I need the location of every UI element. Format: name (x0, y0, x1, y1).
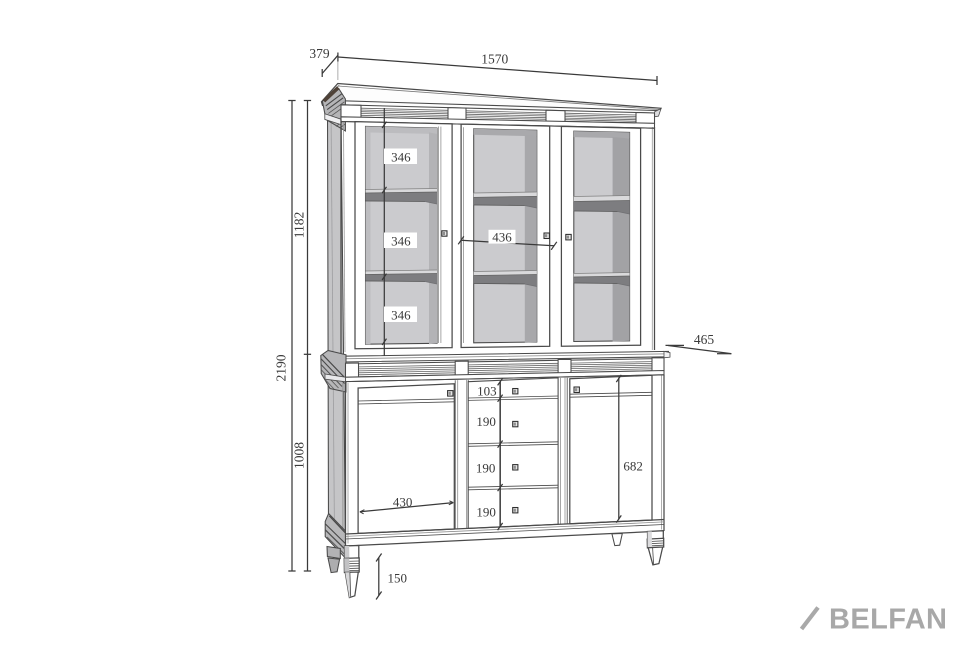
svg-text:346: 346 (391, 233, 411, 248)
svg-text:190: 190 (476, 414, 496, 429)
svg-text:BELFAN: BELFAN (829, 604, 947, 636)
svg-text:190: 190 (476, 460, 496, 475)
svg-text:346: 346 (391, 307, 411, 322)
svg-text:150: 150 (388, 570, 408, 585)
svg-text:1570: 1570 (481, 52, 508, 67)
svg-text:103: 103 (477, 384, 497, 399)
svg-text:465: 465 (694, 332, 715, 347)
svg-text:2190: 2190 (274, 354, 289, 381)
svg-text:190: 190 (476, 504, 496, 519)
svg-text:430: 430 (393, 495, 413, 510)
svg-text:682: 682 (623, 459, 643, 474)
svg-text:379: 379 (309, 46, 330, 61)
svg-text:436: 436 (492, 229, 512, 244)
svg-text:346: 346 (391, 149, 411, 164)
svg-text:1182: 1182 (291, 212, 306, 239)
svg-text:1008: 1008 (291, 442, 306, 469)
